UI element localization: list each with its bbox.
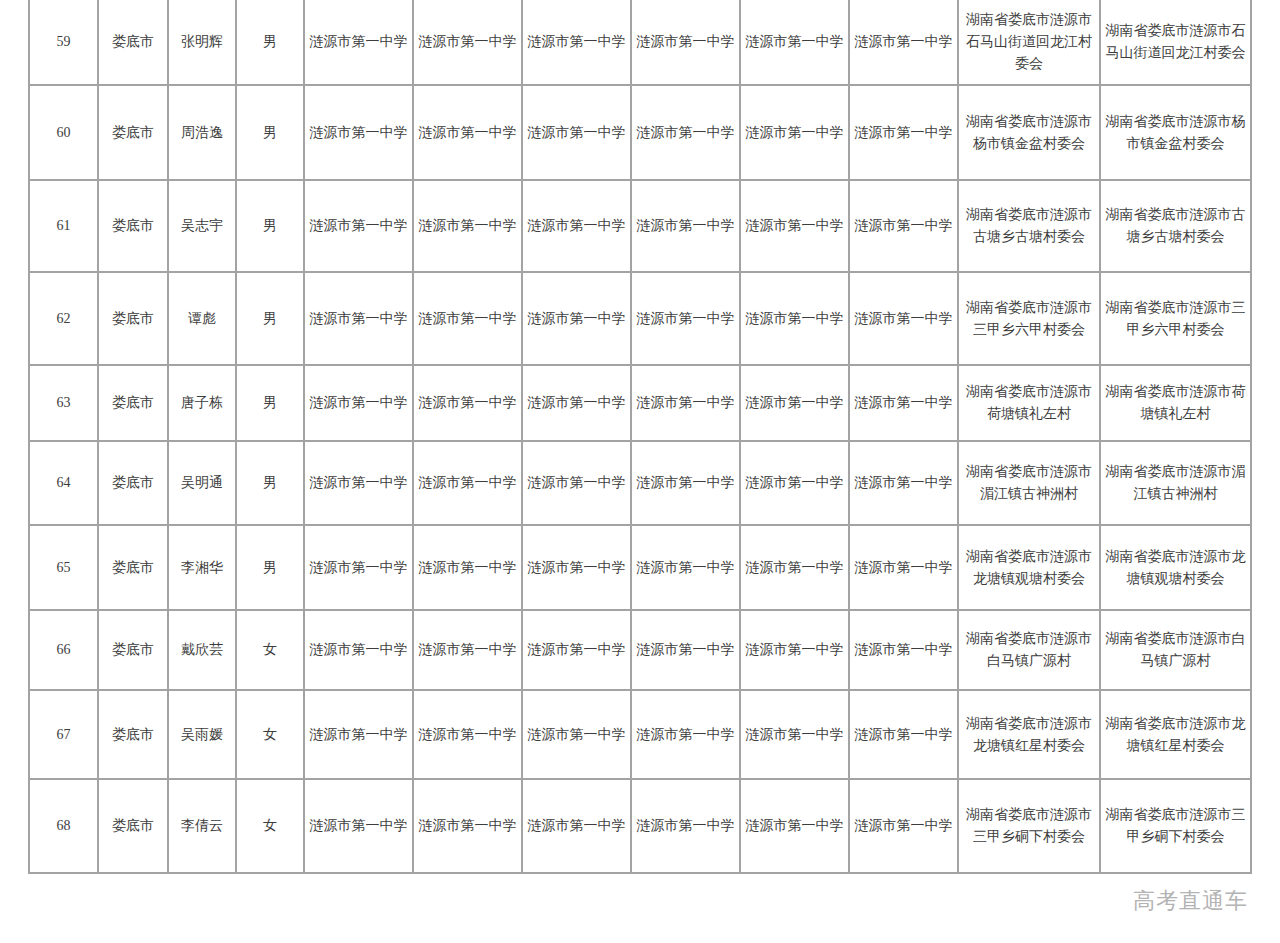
cell-address: 湖南省娄底市涟源市湄江镇古神洲村 xyxy=(1100,441,1251,525)
cell-gender: 男 xyxy=(236,441,304,525)
cell-school: 涟源市第一中学 xyxy=(522,180,631,272)
cell-school: 涟源市第一中学 xyxy=(522,690,631,779)
cell-school: 涟源市第一中学 xyxy=(849,272,958,365)
cell-school: 涟源市第一中学 xyxy=(631,525,740,610)
cell-seq: 59 xyxy=(29,0,98,85)
cell-gender: 男 xyxy=(236,365,304,441)
cell-school: 涟源市第一中学 xyxy=(304,0,413,85)
cell-school: 涟源市第一中学 xyxy=(413,441,522,525)
cell-name: 李湘华 xyxy=(168,525,236,610)
cell-school: 涟源市第一中学 xyxy=(304,85,413,180)
cell-school: 涟源市第一中学 xyxy=(631,272,740,365)
cell-school: 涟源市第一中学 xyxy=(304,180,413,272)
cell-address: 湖南省娄底市涟源市三甲乡六甲村委会 xyxy=(958,272,1100,365)
watermark-text: 高考直通车 xyxy=(1133,886,1248,916)
cell-school: 涟源市第一中学 xyxy=(413,85,522,180)
cell-gender: 男 xyxy=(236,85,304,180)
cell-name: 唐子栋 xyxy=(168,365,236,441)
cell-school: 涟源市第一中学 xyxy=(522,0,631,85)
cell-name: 吴志宇 xyxy=(168,180,236,272)
cell-school: 涟源市第一中学 xyxy=(304,610,413,690)
cell-school: 涟源市第一中学 xyxy=(631,610,740,690)
cell-school: 涟源市第一中学 xyxy=(849,690,958,779)
cell-school: 涟源市第一中学 xyxy=(413,180,522,272)
cell-address: 湖南省娄底市涟源市湄江镇古神洲村 xyxy=(958,441,1100,525)
cell-city: 娄底市 xyxy=(98,525,168,610)
cell-school: 涟源市第一中学 xyxy=(740,525,849,610)
cell-school: 涟源市第一中学 xyxy=(849,85,958,180)
cell-gender: 女 xyxy=(236,779,304,873)
table-row: 62 娄底市 谭彪 男 涟源市第一中学 涟源市第一中学 涟源市第一中学 涟源市第… xyxy=(29,272,1251,365)
cell-seq: 68 xyxy=(29,779,98,873)
cell-address: 湖南省娄底市涟源市龙塘镇红星村委会 xyxy=(958,690,1100,779)
cell-address: 湖南省娄底市涟源市三甲乡硐下村委会 xyxy=(958,779,1100,873)
cell-school: 涟源市第一中学 xyxy=(631,365,740,441)
cell-seq: 64 xyxy=(29,441,98,525)
cell-city: 娄底市 xyxy=(98,272,168,365)
cell-seq: 62 xyxy=(29,272,98,365)
cell-seq: 66 xyxy=(29,610,98,690)
cell-school: 涟源市第一中学 xyxy=(740,610,849,690)
cell-address: 湖南省娄底市涟源市荷塘镇礼左村 xyxy=(1100,365,1251,441)
document-page: 59 娄底市 张明辉 男 涟源市第一中学 涟源市第一中学 涟源市第一中学 涟源市… xyxy=(0,0,1280,943)
cell-school: 涟源市第一中学 xyxy=(522,85,631,180)
table-row: 60 娄底市 周浩逸 男 涟源市第一中学 涟源市第一中学 涟源市第一中学 涟源市… xyxy=(29,85,1251,180)
cell-address: 湖南省娄底市涟源市白马镇广源村 xyxy=(1100,610,1251,690)
cell-city: 娄底市 xyxy=(98,365,168,441)
table-row: 68 娄底市 李倩云 女 涟源市第一中学 涟源市第一中学 涟源市第一中学 涟源市… xyxy=(29,779,1251,873)
cell-school: 涟源市第一中学 xyxy=(304,690,413,779)
cell-school: 涟源市第一中学 xyxy=(740,365,849,441)
cell-seq: 63 xyxy=(29,365,98,441)
table-row: 64 娄底市 吴明通 男 涟源市第一中学 涟源市第一中学 涟源市第一中学 涟源市… xyxy=(29,441,1251,525)
cell-seq: 65 xyxy=(29,525,98,610)
cell-school: 涟源市第一中学 xyxy=(631,0,740,85)
cell-school: 涟源市第一中学 xyxy=(631,85,740,180)
cell-gender: 男 xyxy=(236,525,304,610)
cell-address: 湖南省娄底市涟源市石马山街道回龙江村委会 xyxy=(1100,0,1251,85)
cell-seq: 67 xyxy=(29,690,98,779)
cell-seq: 61 xyxy=(29,180,98,272)
cell-name: 谭彪 xyxy=(168,272,236,365)
table-row: 66 娄底市 戴欣芸 女 涟源市第一中学 涟源市第一中学 涟源市第一中学 涟源市… xyxy=(29,610,1251,690)
cell-school: 涟源市第一中学 xyxy=(304,272,413,365)
cell-school: 涟源市第一中学 xyxy=(413,272,522,365)
cell-gender: 女 xyxy=(236,610,304,690)
table-row: 59 娄底市 张明辉 男 涟源市第一中学 涟源市第一中学 涟源市第一中学 涟源市… xyxy=(29,0,1251,85)
table-row: 61 娄底市 吴志宇 男 涟源市第一中学 涟源市第一中学 涟源市第一中学 涟源市… xyxy=(29,180,1251,272)
cell-school: 涟源市第一中学 xyxy=(740,0,849,85)
cell-school: 涟源市第一中学 xyxy=(631,180,740,272)
cell-name: 吴明通 xyxy=(168,441,236,525)
cell-school: 涟源市第一中学 xyxy=(740,180,849,272)
cell-city: 娄底市 xyxy=(98,441,168,525)
cell-city: 娄底市 xyxy=(98,779,168,873)
cell-school: 涟源市第一中学 xyxy=(413,690,522,779)
cell-address: 湖南省娄底市涟源市杨市镇金盆村委会 xyxy=(958,85,1100,180)
cell-name: 周浩逸 xyxy=(168,85,236,180)
cell-school: 涟源市第一中学 xyxy=(740,85,849,180)
table-row: 67 娄底市 吴雨媛 女 涟源市第一中学 涟源市第一中学 涟源市第一中学 涟源市… xyxy=(29,690,1251,779)
cell-address: 湖南省娄底市涟源市石马山街道回龙江村委会 xyxy=(958,0,1100,85)
cell-name: 吴雨媛 xyxy=(168,690,236,779)
cell-city: 娄底市 xyxy=(98,690,168,779)
cell-school: 涟源市第一中学 xyxy=(631,441,740,525)
cell-school: 涟源市第一中学 xyxy=(522,272,631,365)
cell-school: 涟源市第一中学 xyxy=(522,525,631,610)
cell-school: 涟源市第一中学 xyxy=(849,365,958,441)
cell-address: 湖南省娄底市涟源市三甲乡硐下村委会 xyxy=(1100,779,1251,873)
cell-school: 涟源市第一中学 xyxy=(413,365,522,441)
cell-school: 涟源市第一中学 xyxy=(522,441,631,525)
cell-city: 娄底市 xyxy=(98,180,168,272)
cell-address: 湖南省娄底市涟源市荷塘镇礼左村 xyxy=(958,365,1100,441)
cell-gender: 男 xyxy=(236,180,304,272)
cell-school: 涟源市第一中学 xyxy=(413,525,522,610)
cell-school: 涟源市第一中学 xyxy=(522,610,631,690)
cell-gender: 女 xyxy=(236,690,304,779)
cell-school: 涟源市第一中学 xyxy=(849,0,958,85)
cell-name: 戴欣芸 xyxy=(168,610,236,690)
cell-gender: 男 xyxy=(236,0,304,85)
cell-address: 湖南省娄底市涟源市古塘乡古塘村委会 xyxy=(1100,180,1251,272)
cell-city: 娄底市 xyxy=(98,85,168,180)
cell-address: 湖南省娄底市涟源市古塘乡古塘村委会 xyxy=(958,180,1100,272)
cell-name: 张明辉 xyxy=(168,0,236,85)
cell-address: 湖南省娄底市涟源市龙塘镇观塘村委会 xyxy=(1100,525,1251,610)
table-row: 63 娄底市 唐子栋 男 涟源市第一中学 涟源市第一中学 涟源市第一中学 涟源市… xyxy=(29,365,1251,441)
cell-school: 涟源市第一中学 xyxy=(522,779,631,873)
cell-gender: 男 xyxy=(236,272,304,365)
cell-school: 涟源市第一中学 xyxy=(740,779,849,873)
cell-school: 涟源市第一中学 xyxy=(413,610,522,690)
cell-school: 涟源市第一中学 xyxy=(740,690,849,779)
cell-name: 李倩云 xyxy=(168,779,236,873)
cell-school: 涟源市第一中学 xyxy=(631,690,740,779)
cell-seq: 60 xyxy=(29,85,98,180)
cell-school: 涟源市第一中学 xyxy=(304,779,413,873)
cell-address: 湖南省娄底市涟源市杨市镇金盆村委会 xyxy=(1100,85,1251,180)
cell-school: 涟源市第一中学 xyxy=(849,779,958,873)
cell-school: 涟源市第一中学 xyxy=(849,610,958,690)
cell-school: 涟源市第一中学 xyxy=(849,441,958,525)
cell-address: 湖南省娄底市涟源市龙塘镇红星村委会 xyxy=(1100,690,1251,779)
table-row: 65 娄底市 李湘华 男 涟源市第一中学 涟源市第一中学 涟源市第一中学 涟源市… xyxy=(29,525,1251,610)
cell-school: 涟源市第一中学 xyxy=(304,365,413,441)
cell-city: 娄底市 xyxy=(98,610,168,690)
cell-city: 娄底市 xyxy=(98,0,168,85)
cell-address: 湖南省娄底市涟源市龙塘镇观塘村委会 xyxy=(958,525,1100,610)
cell-school: 涟源市第一中学 xyxy=(740,441,849,525)
cell-school: 涟源市第一中学 xyxy=(413,0,522,85)
cell-school: 涟源市第一中学 xyxy=(304,525,413,610)
cell-school: 涟源市第一中学 xyxy=(849,525,958,610)
cell-school: 涟源市第一中学 xyxy=(413,779,522,873)
cell-address: 湖南省娄底市涟源市三甲乡六甲村委会 xyxy=(1100,272,1251,365)
cell-school: 涟源市第一中学 xyxy=(740,272,849,365)
cell-school: 涟源市第一中学 xyxy=(631,779,740,873)
student-table: 59 娄底市 张明辉 男 涟源市第一中学 涟源市第一中学 涟源市第一中学 涟源市… xyxy=(28,0,1252,874)
cell-school: 涟源市第一中学 xyxy=(522,365,631,441)
cell-address: 湖南省娄底市涟源市白马镇广源村 xyxy=(958,610,1100,690)
cell-school: 涟源市第一中学 xyxy=(849,180,958,272)
cell-school: 涟源市第一中学 xyxy=(304,441,413,525)
